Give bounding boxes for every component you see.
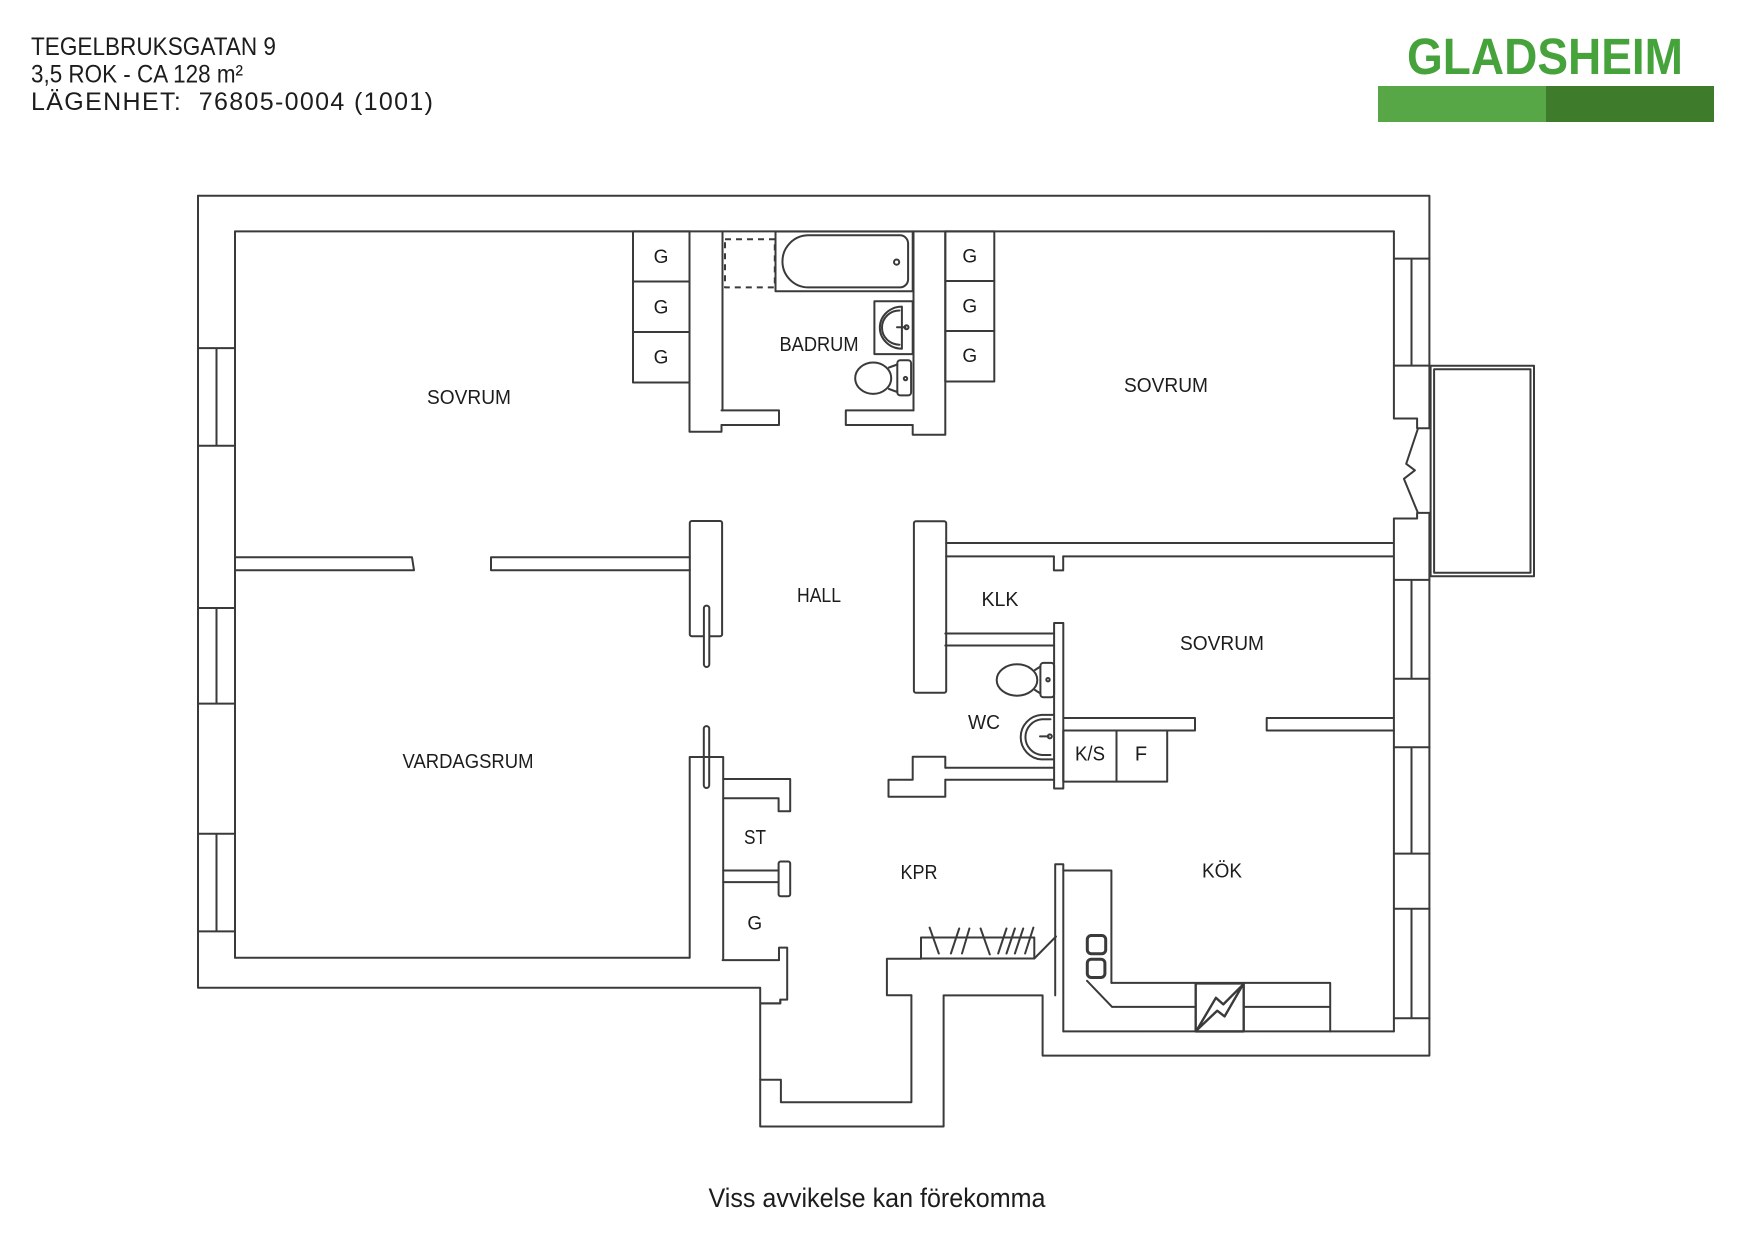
svg-text:F: F <box>1135 744 1147 766</box>
svg-text:HALL: HALL <box>797 585 841 607</box>
svg-text:G: G <box>654 348 669 369</box>
svg-text:SOVRUM: SOVRUM <box>1180 633 1264 655</box>
svg-text:KPR: KPR <box>901 862 938 884</box>
svg-text:TEGELBRUKSGATAN 9: TEGELBRUKSGATAN 9 <box>31 33 276 61</box>
svg-text:SOVRUM: SOVRUM <box>427 387 511 409</box>
svg-text:KLK: KLK <box>982 589 1020 611</box>
svg-text:BADRUM: BADRUM <box>780 334 859 356</box>
svg-text:ST: ST <box>744 827 766 849</box>
svg-text:GLADSHEIM: GLADSHEIM <box>1407 28 1683 85</box>
svg-text:Viss avvikelse kan förekomma: Viss avvikelse kan förekomma <box>709 1183 1047 1213</box>
svg-text:LÄGENHET: 76805-0004 (1001): LÄGENHET: 76805-0004 (1001) <box>31 88 433 116</box>
svg-text:3,5 ROK - CA 128 m²: 3,5 ROK - CA 128 m² <box>31 61 243 89</box>
svg-text:K/S: K/S <box>1075 744 1105 766</box>
svg-text:G: G <box>654 298 669 319</box>
svg-text:G: G <box>747 914 762 935</box>
svg-text:SOVRUM: SOVRUM <box>1124 375 1208 397</box>
svg-text:KÖK: KÖK <box>1202 861 1243 883</box>
svg-text:G: G <box>962 297 977 318</box>
svg-text:G: G <box>654 247 669 268</box>
svg-text:VARDAGSRUM: VARDAGSRUM <box>403 751 534 773</box>
svg-text:G: G <box>962 346 977 367</box>
svg-text:G: G <box>962 247 977 268</box>
svg-text:WC: WC <box>968 712 1000 734</box>
